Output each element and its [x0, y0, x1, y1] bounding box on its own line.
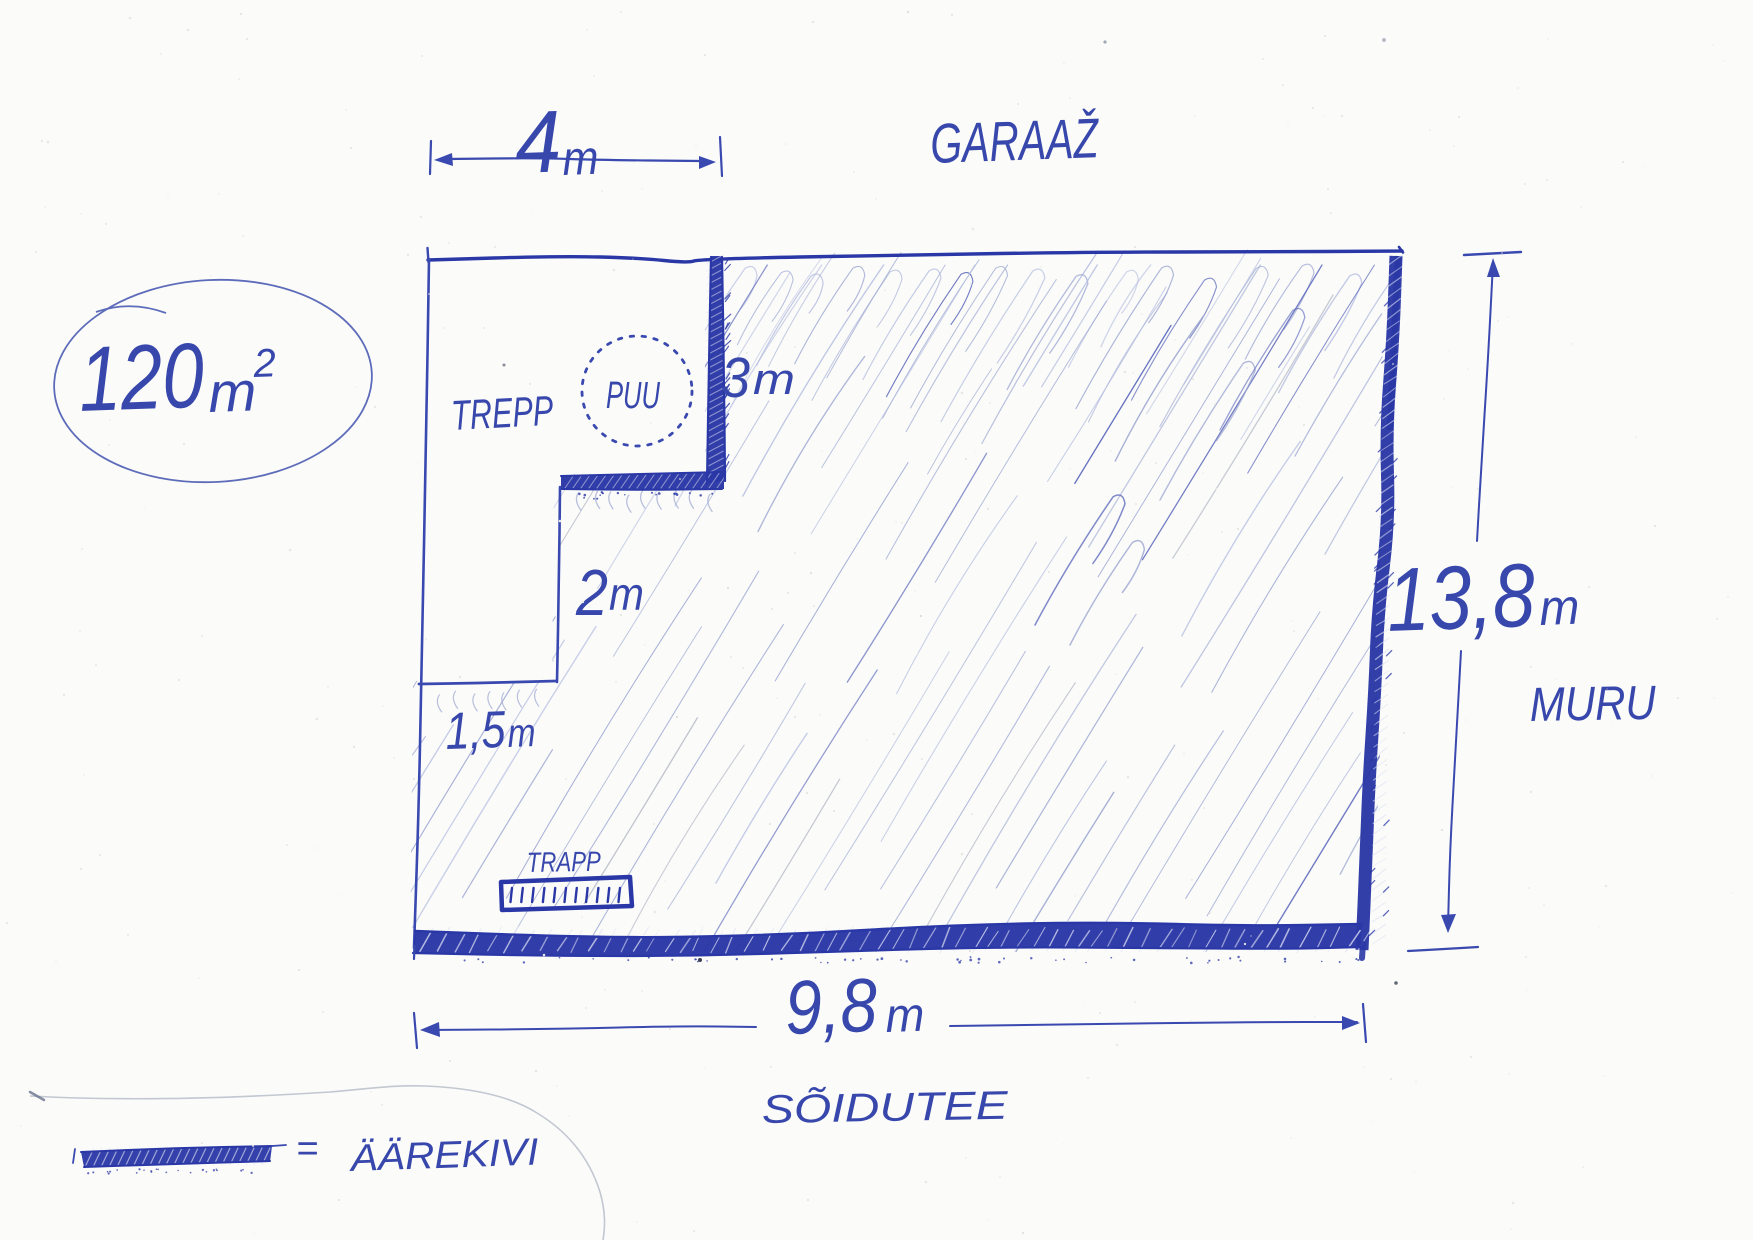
- svg-text:m: m: [1538, 579, 1580, 636]
- svg-text:m: m: [609, 568, 644, 620]
- svg-text:PUU: PUU: [606, 375, 660, 417]
- svg-text:SÕIDUTEE: SÕIDUTEE: [761, 1083, 1009, 1132]
- svg-text:4: 4: [513, 91, 562, 192]
- svg-text:MURU: MURU: [1529, 677, 1656, 732]
- svg-text:m: m: [562, 132, 600, 186]
- svg-text:m: m: [885, 989, 926, 1043]
- svg-text:m: m: [207, 359, 257, 424]
- svg-text:2: 2: [575, 556, 608, 629]
- svg-text:1,5: 1,5: [444, 701, 507, 761]
- svg-text:120: 120: [77, 325, 205, 431]
- svg-text:13,8: 13,8: [1385, 546, 1536, 651]
- svg-text:m: m: [507, 711, 537, 756]
- svg-text:m: m: [753, 355, 795, 404]
- svg-text:9,8: 9,8: [784, 963, 879, 1051]
- svg-text:TRAPP: TRAPP: [527, 846, 602, 878]
- svg-text:3: 3: [721, 346, 750, 410]
- svg-text:=: =: [296, 1128, 318, 1170]
- svg-text:GARAAŽ: GARAAŽ: [929, 106, 1100, 175]
- svg-text:TREPP: TREPP: [450, 387, 554, 439]
- svg-text:2: 2: [252, 341, 277, 386]
- svg-text:ÄÄREKIVI: ÄÄREKIVI: [348, 1131, 540, 1180]
